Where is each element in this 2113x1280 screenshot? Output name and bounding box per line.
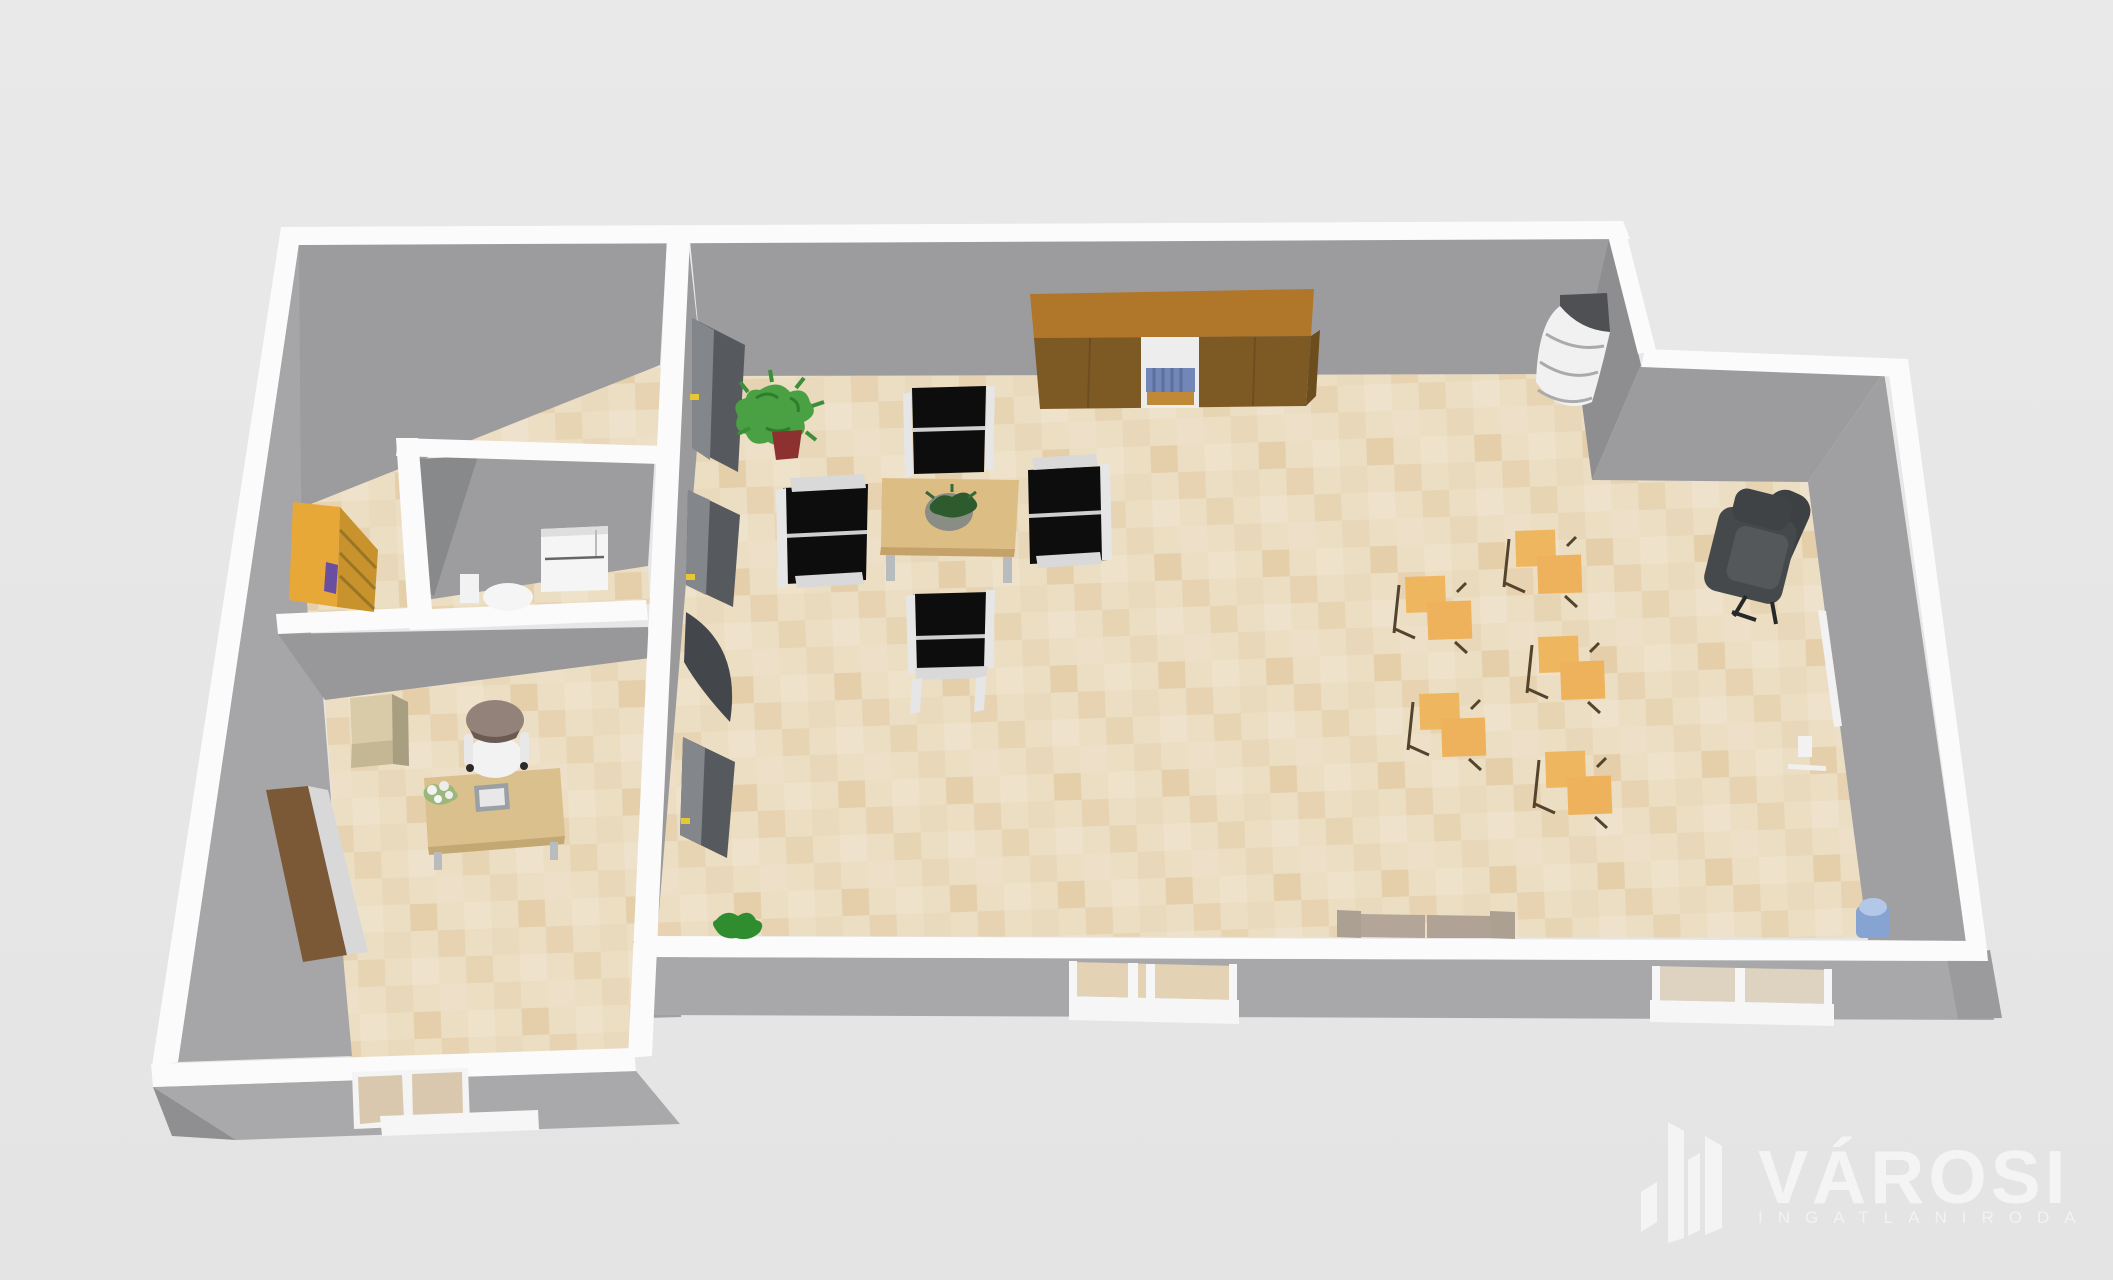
svg-text:VÁROSI: VÁROSI — [1758, 1135, 2070, 1219]
svg-text:INGATLANIRODA: INGATLANIRODA — [1758, 1208, 2091, 1227]
